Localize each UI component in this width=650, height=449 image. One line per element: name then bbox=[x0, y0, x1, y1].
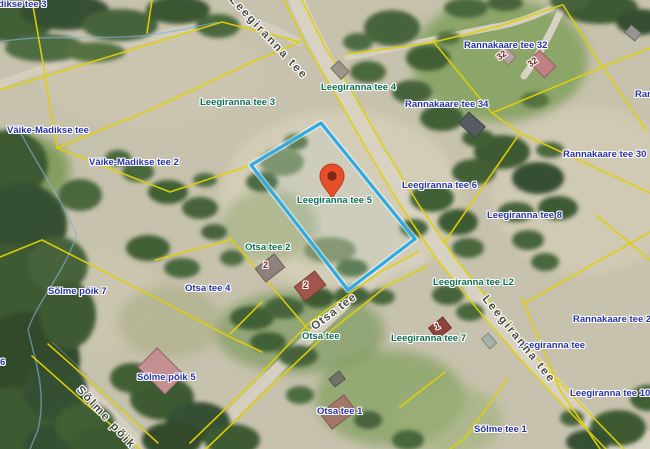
parcel-address-label: Leegiranna tee 7 bbox=[391, 334, 466, 344]
parcel-address-label: Rannakaare tee 34 bbox=[405, 100, 488, 110]
parcel-address-label: Väike-Madikse tee 2 bbox=[89, 158, 179, 168]
parcel-address-label: Leegiranna tee L2 bbox=[433, 278, 514, 288]
parcel-address-label: Väike-Madikse tee bbox=[7, 126, 89, 136]
house-number-label: 2 bbox=[303, 281, 308, 291]
road-name-label: Sõlme põik bbox=[73, 384, 138, 449]
parcel-address-label: Rannakaare tee 32 bbox=[464, 41, 547, 51]
parcel-address-label: Otsa tee bbox=[302, 332, 340, 342]
parcel-address-label: Otsa tee 2 bbox=[245, 243, 290, 253]
parcel-address-label: Sõlme põik 5 bbox=[137, 373, 196, 383]
parcel-address-label: Leegiranna tee 6 bbox=[402, 181, 477, 191]
parcel-address-label: Leegiranna tee 10 bbox=[570, 389, 650, 399]
parcel-address-label: Leegiranna tee 8 bbox=[487, 211, 562, 221]
house-number-label: 1 bbox=[433, 321, 441, 332]
parcel-address-label: Leegiranna tee 3 bbox=[200, 98, 275, 108]
map-canvas[interactable]: dikse tee 3Leegiranna teeLeegiranna tee … bbox=[0, 0, 650, 449]
parcel-address-label: Sõlme põik 7 bbox=[48, 287, 107, 297]
parcel-address-label: Rannakaare tee 30 bbox=[563, 150, 646, 160]
road-name-label: Otsa tee bbox=[309, 291, 359, 333]
parcel-address-label: Ran bbox=[635, 90, 650, 100]
house-number-label: 2 bbox=[263, 261, 268, 271]
parcel-address-label: Otsa tee 1 bbox=[317, 407, 362, 417]
parcel-address-label: dikse tee 3 bbox=[0, 0, 47, 10]
parcel-address-label: Leegiranna tee 5 bbox=[297, 196, 372, 206]
parcel-address-label: Rannakaare tee 2 bbox=[573, 315, 650, 325]
parcel-address-label: Sõlme tee 1 bbox=[474, 425, 527, 435]
parcel-address-label: Otsa tee 4 bbox=[185, 284, 230, 294]
parcel-address-label: Leegiranna tee 4 bbox=[321, 83, 396, 93]
house-number-label: 32 bbox=[526, 56, 540, 70]
parcel-address-label: 6 bbox=[0, 358, 5, 368]
labels-layer: dikse tee 3Leegiranna teeLeegiranna tee … bbox=[0, 0, 650, 449]
road-name-label: Leegiranna tee bbox=[226, 0, 310, 82]
